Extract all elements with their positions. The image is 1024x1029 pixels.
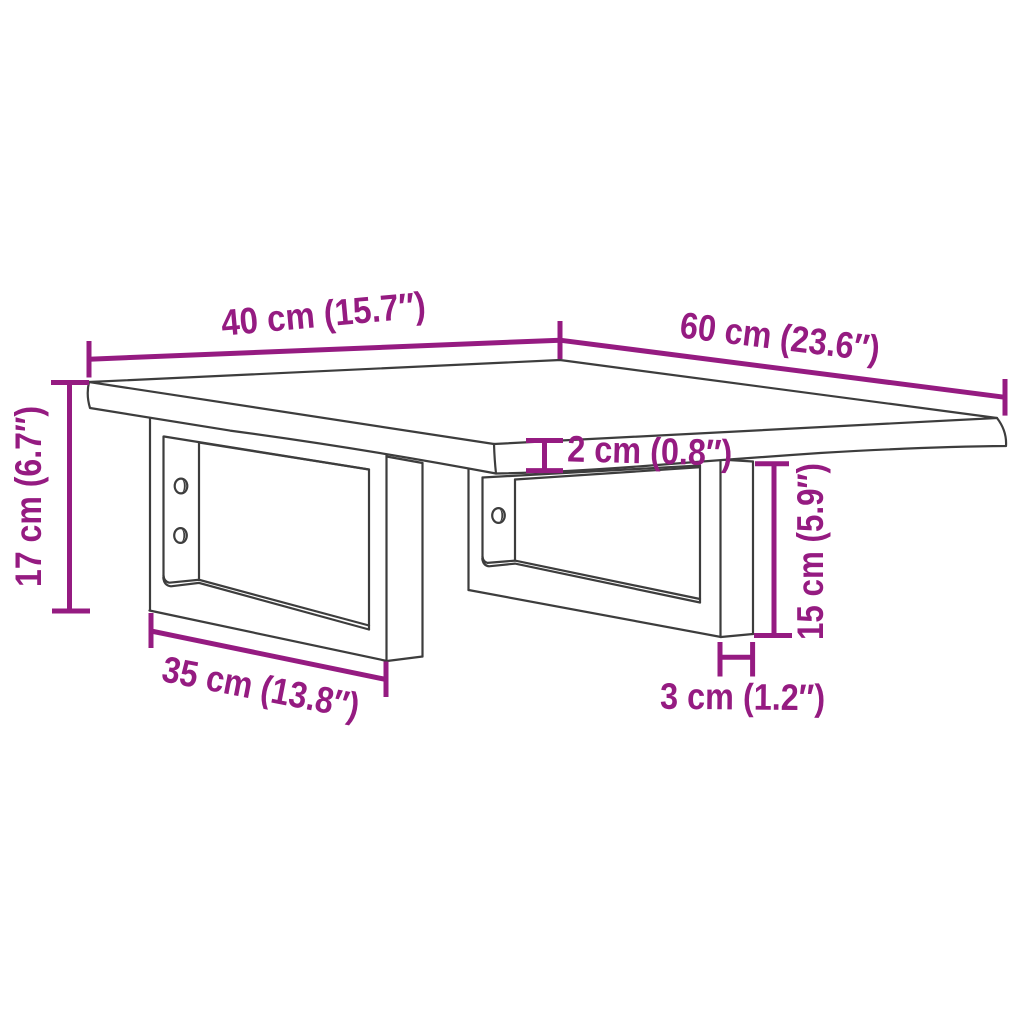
svg-text:3 cm (1.2″): 3 cm (1.2″) bbox=[660, 676, 825, 718]
svg-text:2 cm (0.8″): 2 cm (0.8″) bbox=[567, 428, 733, 473]
svg-text:15 cm (5.9″): 15 cm (5.9″) bbox=[790, 463, 831, 640]
svg-text:17 cm (6.7″): 17 cm (6.7″) bbox=[8, 406, 49, 587]
